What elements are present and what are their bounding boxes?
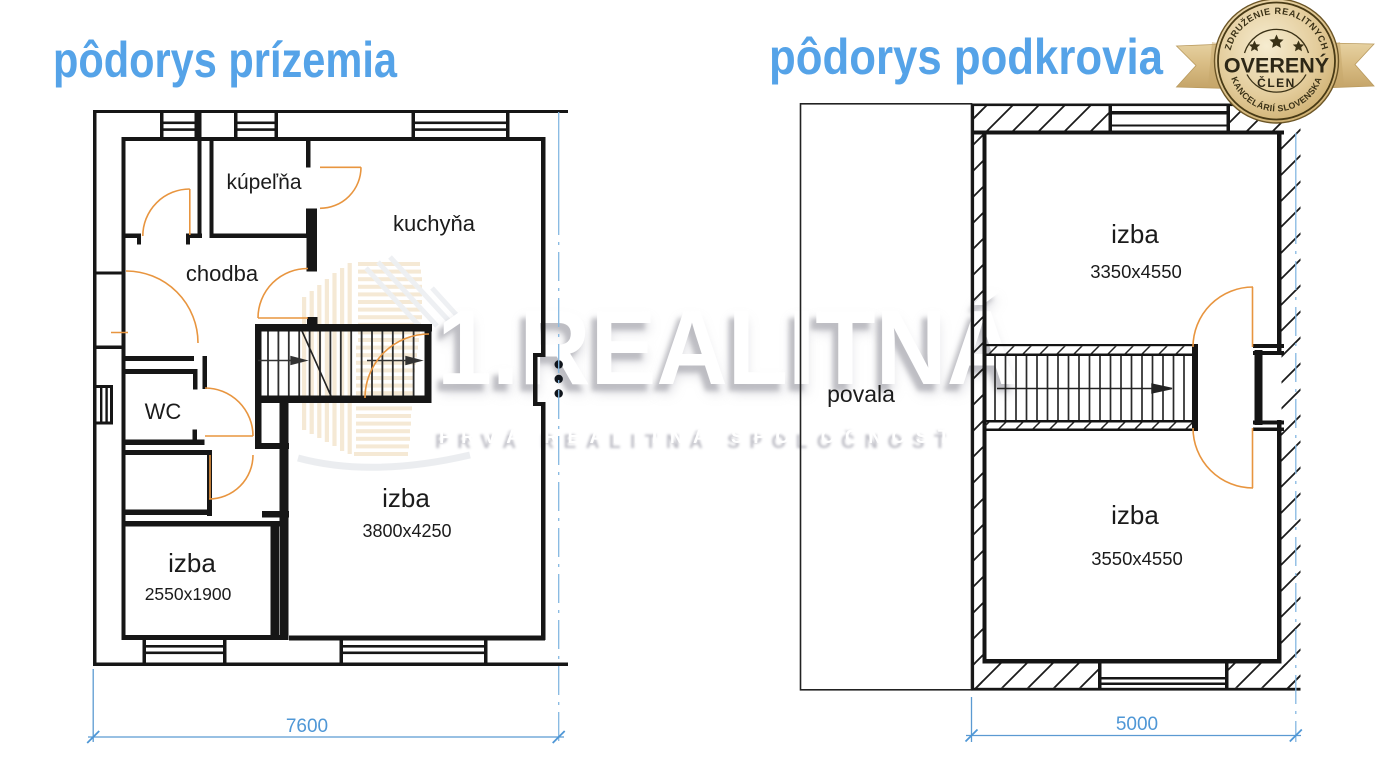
svg-text:3800x4250: 3800x4250 [362, 521, 451, 541]
svg-text:kúpeľňa: kúpeľňa [226, 171, 301, 194]
svg-text:PRVÁ REALITNÁ SPOLOČNOSŤ: PRVÁ REALITNÁ SPOLOČNOSŤ [439, 426, 959, 448]
svg-text:3550x4550: 3550x4550 [1091, 548, 1183, 569]
svg-text:5000: 5000 [1116, 714, 1158, 735]
svg-text:chodba: chodba [186, 261, 259, 286]
svg-text:3350x4550: 3350x4550 [1090, 261, 1182, 282]
svg-text:2550x1900: 2550x1900 [145, 584, 232, 604]
svg-text:izba: izba [1111, 500, 1159, 530]
svg-text:1.REALITNÁ: 1.REALITNÁ [437, 289, 1018, 407]
svg-text:7600: 7600 [286, 716, 328, 737]
svg-text:izba: izba [1111, 219, 1159, 249]
svg-text:OVERENÝ: OVERENÝ [1224, 53, 1329, 78]
svg-text:ČLEN: ČLEN [1257, 75, 1296, 90]
svg-text:pôdorys prízemia: pôdorys prízemia [53, 32, 398, 88]
svg-text:izba: izba [382, 483, 430, 513]
svg-text:povala: povala [827, 381, 895, 407]
svg-text:pôdorys podkrovia: pôdorys podkrovia [769, 29, 1164, 85]
svg-text:WC: WC [145, 399, 182, 424]
svg-text:kuchyňa: kuchyňa [393, 211, 476, 236]
svg-text:izba: izba [168, 548, 216, 578]
